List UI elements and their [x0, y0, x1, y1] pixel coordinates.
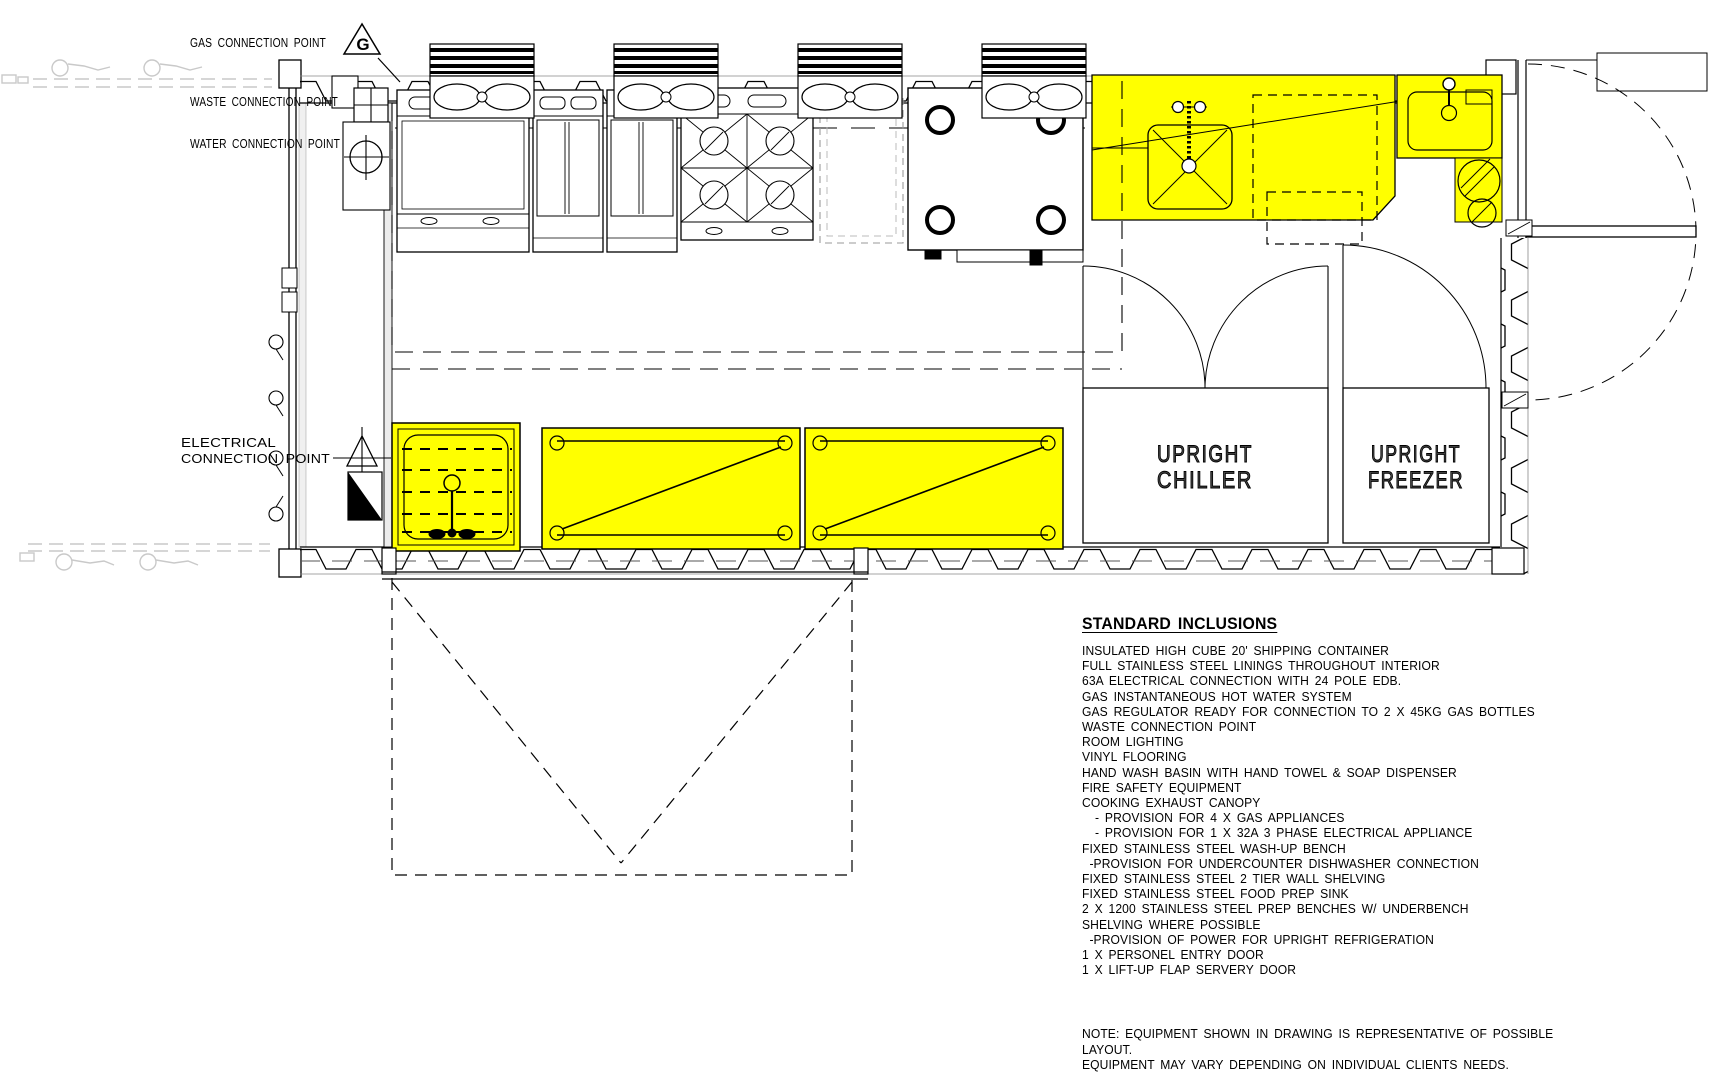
- exhaust-fan: [430, 44, 534, 118]
- electrical-connection-label-line1: ELECTRICAL: [181, 435, 276, 450]
- inclusion-item: FULL STAINLESS STEEL LININGS THROUGHOUT …: [1082, 658, 1519, 673]
- electrical-symbol: [333, 427, 391, 478]
- upright-chiller: UPRIGHT CHILLER: [1083, 266, 1328, 543]
- food-prep-sink: [392, 423, 520, 551]
- waste-symbol: [354, 88, 388, 122]
- personnel-entry-door: [1502, 53, 1707, 408]
- electrical-connection-label-line2: CONNECTION POINT: [181, 451, 330, 466]
- inclusion-item: 1 X LIFT-UP FLAP SERVERY DOOR: [1082, 962, 1519, 977]
- water-connection-label: WATER CONNECTION POINT: [190, 136, 340, 151]
- electrical-board-symbol: [348, 472, 382, 520]
- inclusion-item: - PROVISION FOR 4 X GAS APPLIANCES: [1082, 810, 1519, 825]
- inclusion-item: - PROVISION FOR 1 X 32A 3 PHASE ELECTRIC…: [1082, 825, 1519, 840]
- drawing-canvas: UPRIGHT CHILLER UPRIGHT FREEZER G: [0, 0, 1715, 1079]
- standard-inclusions-block: STANDARD INCLUSIONS INSULATED HIGH CUBE …: [1082, 614, 1519, 977]
- freezer-label-line1: UPRIGHT: [1371, 441, 1461, 468]
- note-line2: EQUIPMENT MAY VARY DEPENDING ON INDIVIDU…: [1082, 1057, 1566, 1073]
- inclusion-item: COOKING EXHAUST CANOPY: [1082, 795, 1519, 810]
- gas-connection-label: GAS CONNECTION POINT: [190, 35, 326, 50]
- inclusion-item: INSULATED HIGH CUBE 20' SHIPPING CONTAIN…: [1082, 643, 1519, 658]
- inclusions-title: STANDARD INCLUSIONS: [1082, 614, 1277, 634]
- prep-bench: [542, 428, 800, 549]
- hand-wash-basin: [1397, 75, 1502, 158]
- inclusion-item: WASTE CONNECTION POINT: [1082, 719, 1519, 734]
- inclusion-item: SHELVING WHERE POSSIBLE: [1082, 917, 1519, 932]
- note-line1: NOTE: EQUIPMENT SHOWN IN DRAWING IS REPR…: [1082, 1026, 1566, 1057]
- prep-bench: [805, 428, 1063, 549]
- exhaust-fan: [982, 44, 1086, 118]
- fryer-unit: [533, 90, 603, 252]
- exhaust-fan: [798, 44, 902, 118]
- inclusion-item: 63A ELECTRICAL CONNECTION WITH 24 POLE E…: [1082, 673, 1519, 688]
- freezer-label-line2: FREEZER: [1368, 467, 1464, 494]
- waste-connection-label: WASTE CONNECTION POINT: [190, 94, 338, 109]
- gas-symbol-letter: G: [356, 35, 369, 54]
- inclusion-item: GAS INSTANTANEOUS HOT WATER SYSTEM: [1082, 689, 1519, 704]
- note-block: NOTE: EQUIPMENT SHOWN IN DRAWING IS REPR…: [1082, 1026, 1566, 1073]
- future-appliance-dashed: [820, 97, 903, 243]
- inclusion-item: FIXED STAINLESS STEEL WASH-UP BENCH: [1082, 841, 1519, 856]
- waste-bins: [1455, 158, 1502, 227]
- inclusions-list: INSULATED HIGH CUBE 20' SHIPPING CONTAIN…: [1082, 643, 1519, 977]
- exhaust-fan: [614, 44, 718, 118]
- inclusion-item: FIRE SAFETY EQUIPMENT: [1082, 780, 1519, 795]
- chiller-label-line2: CHILLER: [1157, 467, 1253, 494]
- upright-freezer: UPRIGHT FREEZER: [1343, 245, 1489, 543]
- inclusion-item: FIXED STAINLESS STEEL 2 TIER WALL SHELVI…: [1082, 871, 1519, 886]
- inclusion-item: HAND WASH BASIN WITH HAND TOWEL & SOAP D…: [1082, 765, 1519, 780]
- inclusion-item: 1 X PERSONEL ENTRY DOOR: [1082, 947, 1519, 962]
- inclusion-item: -PROVISION FOR UNDERCOUNTER DISHWASHER C…: [1082, 856, 1519, 871]
- inclusion-item: GAS REGULATOR READY FOR CONNECTION TO 2 …: [1082, 704, 1519, 719]
- servery-door-projection: [382, 548, 868, 875]
- inclusion-item: 2 X 1200 STAINLESS STEEL PREP BENCHES W/…: [1082, 901, 1519, 916]
- inclusion-item: FIXED STAINLESS STEEL FOOD PREP SINK: [1082, 886, 1519, 901]
- chiller-label-line1: UPRIGHT: [1157, 441, 1253, 468]
- water-symbol: [343, 122, 390, 210]
- inclusion-item: VINYL FLOORING: [1082, 749, 1519, 764]
- inclusion-item: ROOM LIGHTING: [1082, 734, 1519, 749]
- inclusion-item: -PROVISION OF POWER FOR UPRIGHT REFRIGER…: [1082, 932, 1519, 947]
